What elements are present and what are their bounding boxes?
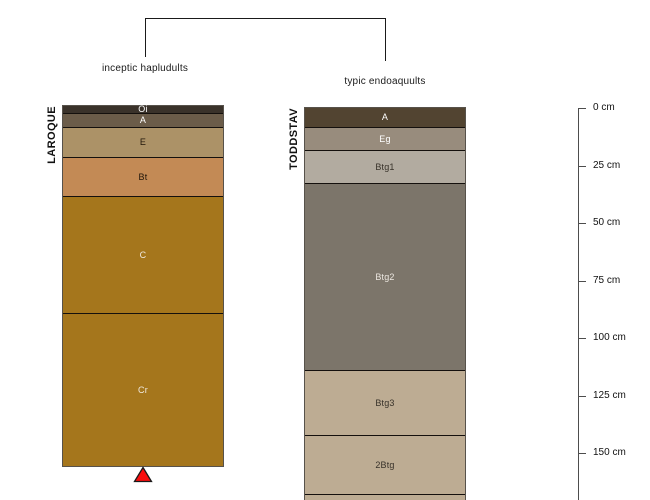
horizon-label: C [140,251,147,260]
horizon-label: Btg1 [375,163,394,172]
depth-tick-50 [578,223,586,224]
horizon-label: A [382,113,388,122]
profile-column-toddstav: AEgBtg1Btg2Btg32Btg [304,107,466,500]
horizon-bt: Bt [63,157,223,196]
horizon-c: C [63,196,223,313]
horizon-oi: Oi [63,106,223,113]
horizon-label: Btg3 [375,399,394,408]
bracket-right-drop [385,18,386,61]
horizon-btg1: Btg1 [305,150,465,183]
depth-tick-75 [578,281,586,282]
horizon-label: E [140,138,146,147]
depth-tick-25 [578,166,586,167]
horizon-label: Cr [138,386,148,395]
depth-tick-label-0: 0 cm [593,102,615,114]
horizon-a: A [305,108,465,127]
depth-tick-100 [578,338,586,339]
horizon-label: A [140,116,146,125]
horizon-unlabeled [305,494,465,500]
depth-tick-150 [578,453,586,454]
classification-label-left: inceptic hapludults [102,63,188,74]
profile-column-laroque: OiAEBtCCr [62,105,224,467]
horizon-btg2: Btg2 [305,183,465,370]
soil-profile-figure: inceptic hapludults typic endoaquults Oi… [0,0,650,500]
profile-name-laroque: LAROQUE [46,106,59,186]
depth-axis-line [578,108,579,500]
depth-tick-125 [578,396,586,397]
depth-tick-label-25: 25 cm [593,160,620,172]
depth-tick-label-75: 75 cm [593,275,620,287]
horizon-label: Btg2 [375,273,394,282]
depth-tick-label-150: 150 cm [593,447,626,459]
depth-tick-label-100: 100 cm [593,332,626,344]
horizon-cr: Cr [63,313,223,466]
horizon-btg3: Btg3 [305,370,465,435]
classification-label-right: typic endoaquults [344,76,425,87]
profile-name-toddstav: TODDSTAV [288,108,301,188]
triangle-up-icon [135,468,152,482]
red-triangle-marker [133,466,153,483]
depth-tick-label-125: 125 cm [593,390,626,402]
horizon-label: Eg [379,135,390,144]
depth-tick-label-50: 50 cm [593,217,620,229]
horizon-a: A [63,113,223,127]
horizon-label: Bt [139,173,148,182]
bracket-top-line [145,18,385,19]
bracket-left-drop [145,18,146,57]
horizon-eg: Eg [305,127,465,150]
horizon-label: 2Btg [375,461,394,470]
horizon-2btg: 2Btg [305,435,465,494]
depth-tick-0 [578,108,586,109]
horizon-e: E [63,127,223,157]
